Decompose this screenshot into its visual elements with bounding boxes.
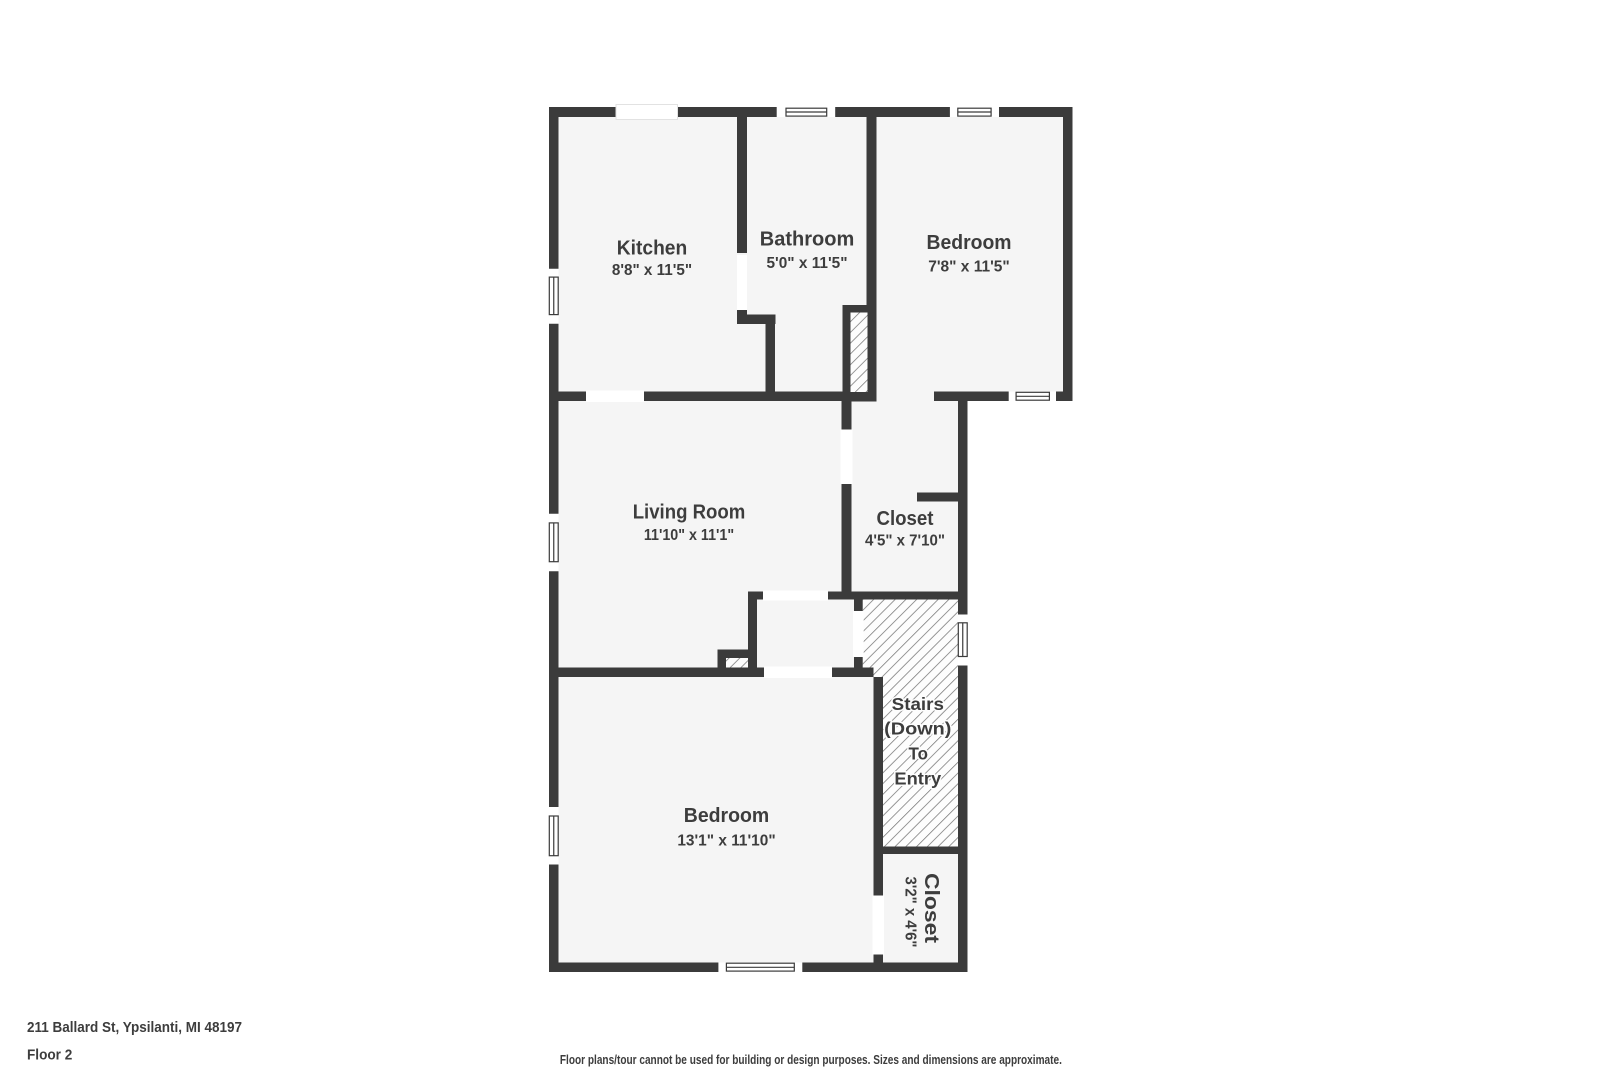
svg-text:5'0" x 11'5": 5'0" x 11'5" <box>767 255 848 272</box>
svg-text:Closet: Closet <box>877 508 934 530</box>
svg-text:13'1" x 11'10": 13'1" x 11'10" <box>677 833 775 850</box>
svg-text:Living Room: Living Room <box>633 501 746 523</box>
svg-text:7'8" x 11'5": 7'8" x 11'5" <box>928 258 1010 275</box>
svg-text:8'8" x 11'5": 8'8" x 11'5" <box>612 262 692 279</box>
svg-text:Bedroom: Bedroom <box>927 232 1012 254</box>
svg-text:3'2" x 4'6": 3'2" x 4'6" <box>902 877 919 948</box>
svg-text:Floor plans/tour cannot be use: Floor plans/tour cannot be used for buil… <box>560 1052 1062 1067</box>
svg-text:Closet: Closet <box>920 873 942 943</box>
svg-text:4'5" x 7'10": 4'5" x 7'10" <box>865 532 945 549</box>
svg-text:11'10" x 11'1": 11'10" x 11'1" <box>644 527 734 544</box>
svg-text:To: To <box>909 743 929 763</box>
svg-text:Floor 2: Floor 2 <box>27 1047 72 1064</box>
svg-text:211 Ballard St, Ypsilanti, MI: 211 Ballard St, Ypsilanti, MI 48197 <box>27 1019 242 1036</box>
svg-text:Entry: Entry <box>894 768 941 788</box>
svg-text:(Down): (Down) <box>884 718 951 738</box>
svg-text:Bathroom: Bathroom <box>760 229 855 251</box>
svg-text:Stairs: Stairs <box>892 694 944 714</box>
svg-text:Bedroom: Bedroom <box>684 805 770 827</box>
svg-text:Kitchen: Kitchen <box>617 238 687 260</box>
